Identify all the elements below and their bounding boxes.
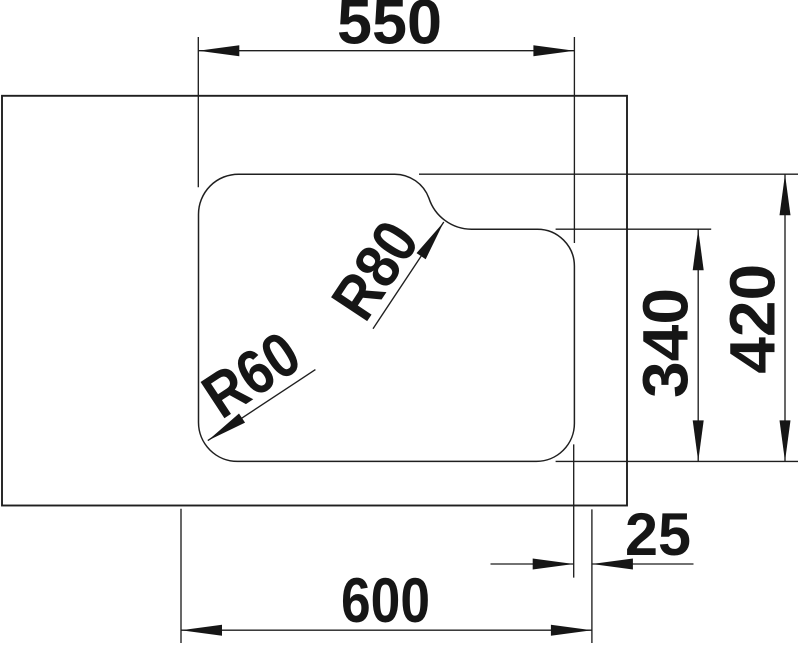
svg-text:600: 600 (341, 566, 430, 636)
svg-text:550: 550 (337, 0, 442, 58)
svg-text:R80: R80 (318, 209, 432, 332)
svg-text:420: 420 (717, 264, 789, 374)
svg-text:340: 340 (630, 288, 702, 398)
svg-text:25: 25 (625, 501, 691, 568)
svg-text:R60: R60 (191, 318, 313, 431)
